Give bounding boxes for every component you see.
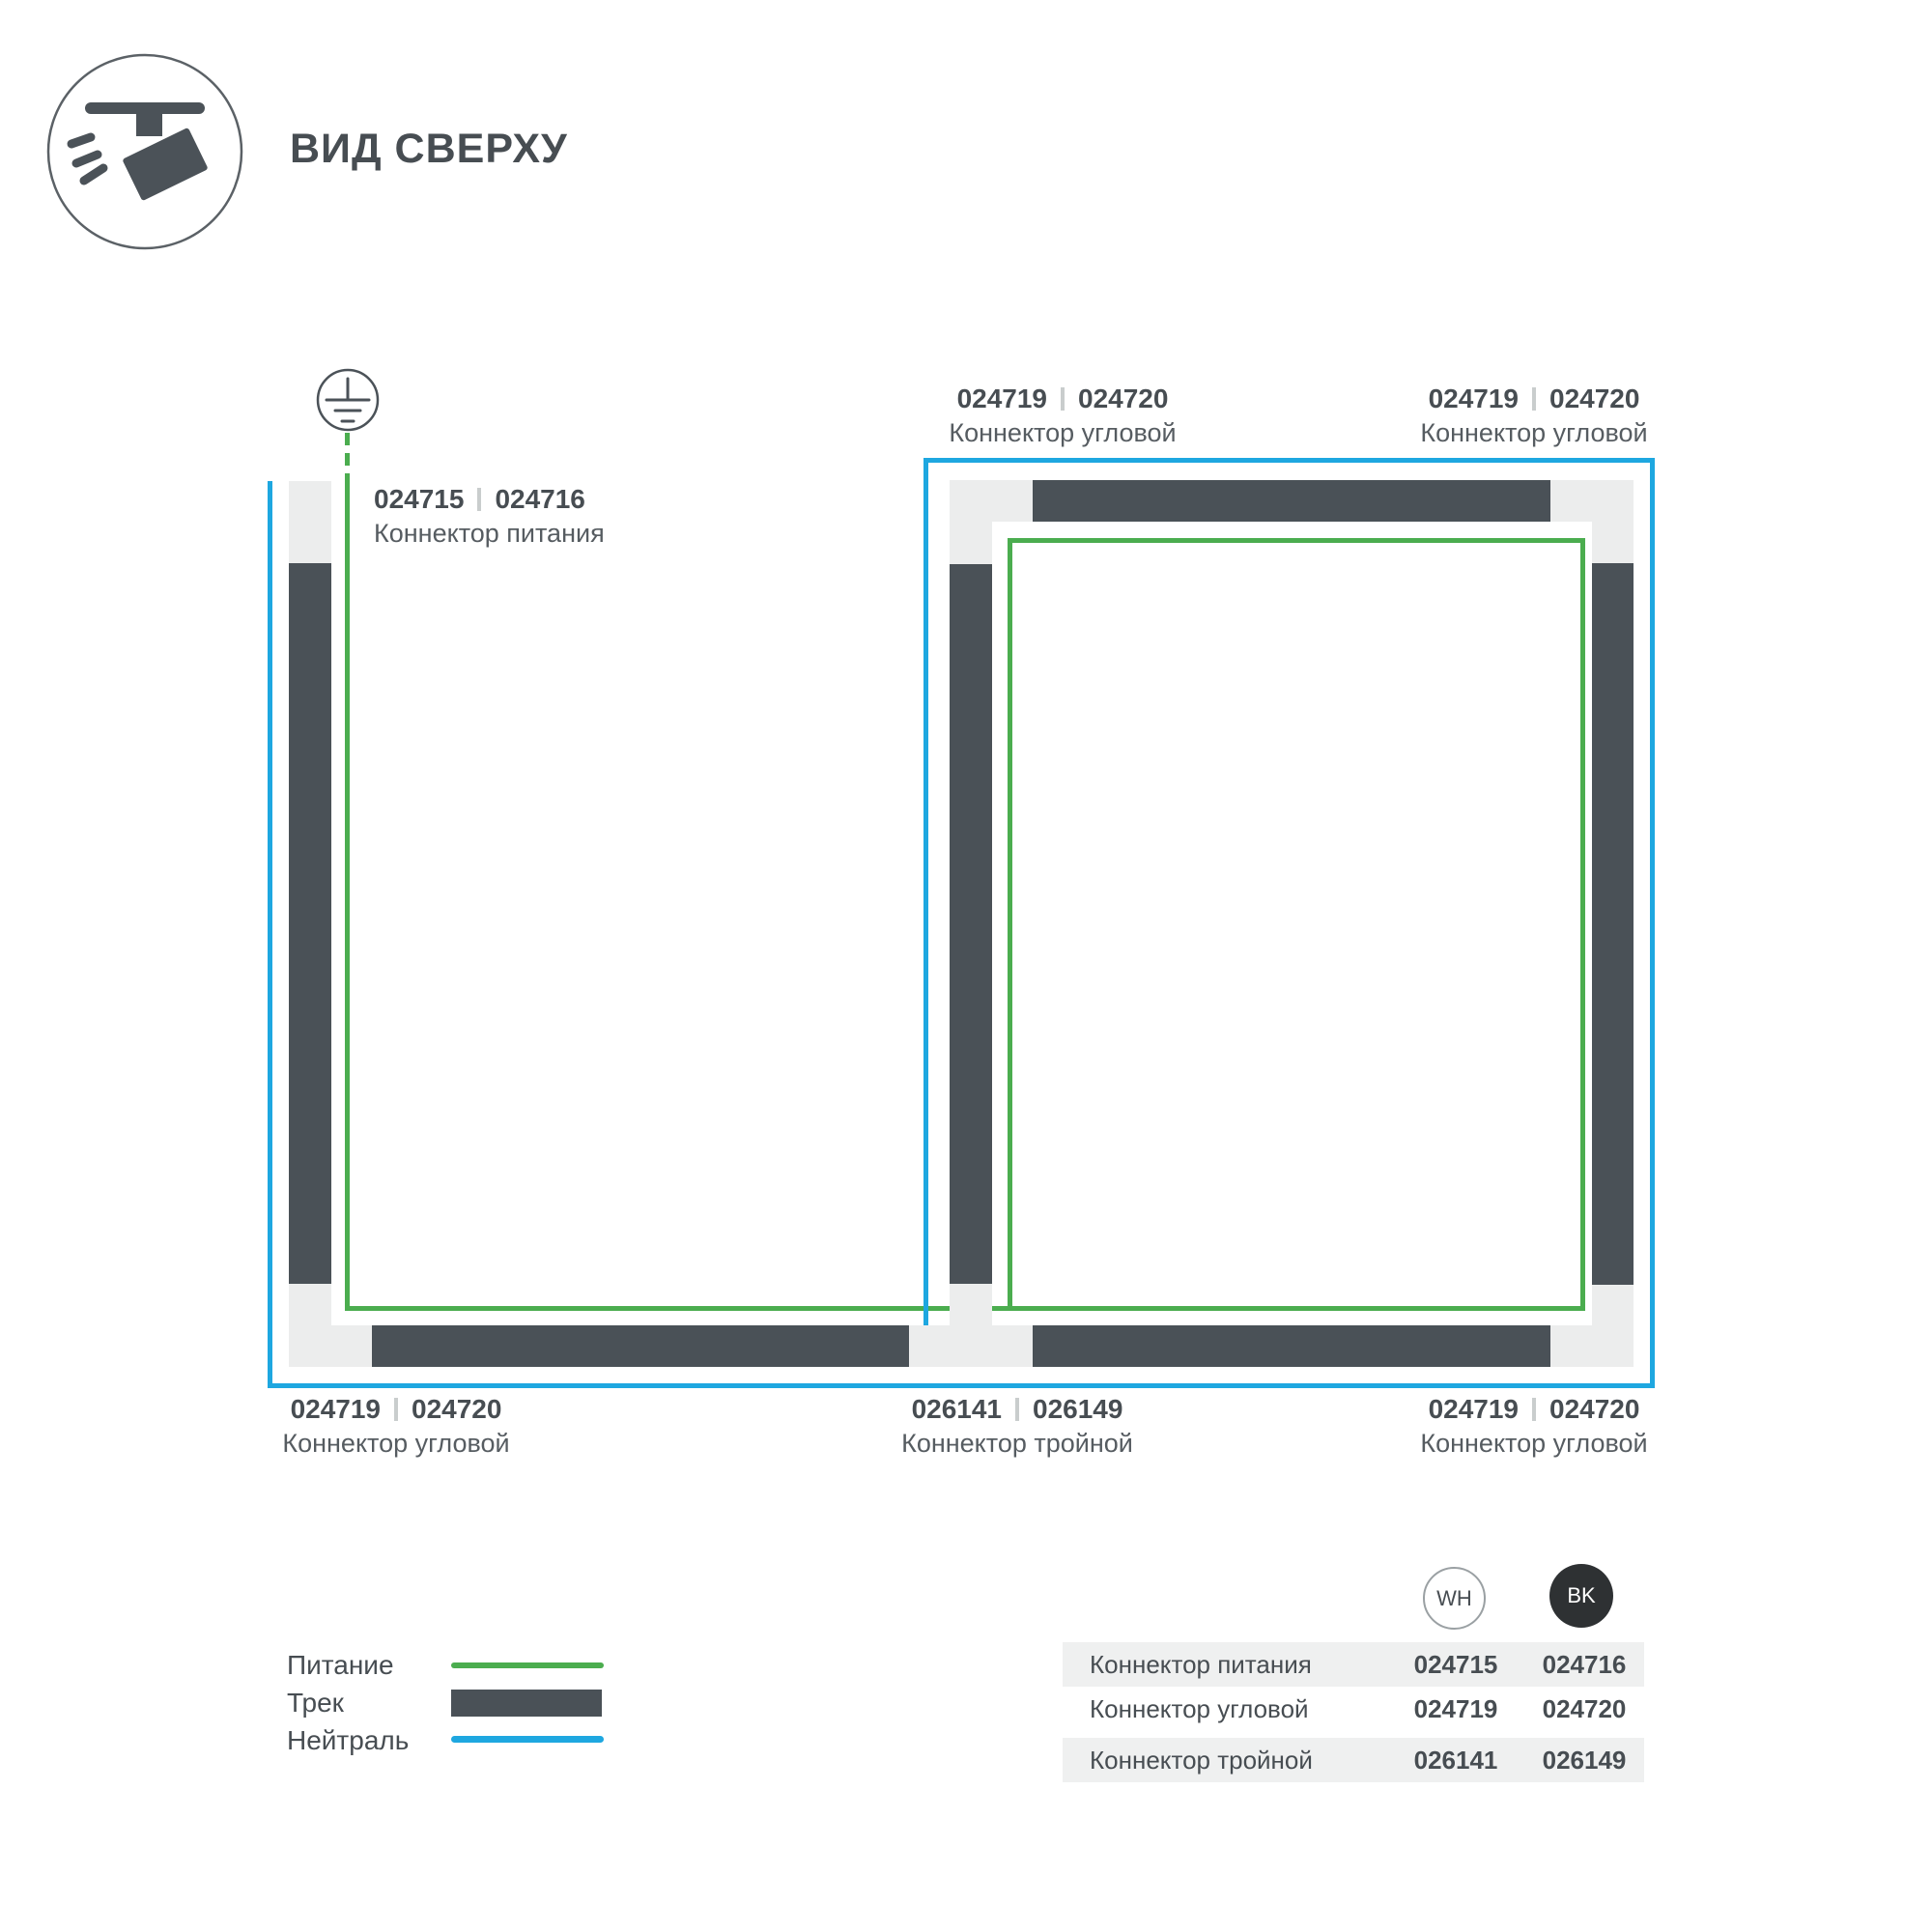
table-row: Коннектор угловой 024719 024720 [1063,1687,1644,1731]
power-loop-right [1580,538,1585,1311]
code-wh: 024719 [1429,384,1519,413]
track-loop-right [1592,563,1634,1285]
code-separator [1532,1398,1536,1421]
label-corner-top-right: 024719 024720 Коннектор угловой [1341,384,1727,447]
label-name: Коннектор угловой [1341,418,1727,447]
legend-label-track: Трек [287,1689,344,1718]
table-row-wh-code: 024719 [1412,1687,1499,1731]
label-name: Коннектор угловой [203,1429,589,1458]
code-bk: 024716 [495,485,584,514]
track-left-vertical [289,563,331,1284]
code-wh: 024719 [1429,1395,1519,1424]
label-codes: 024719 024720 [1341,1395,1727,1424]
legend-swatch-track [451,1690,602,1717]
triple-connector-h [909,1325,1033,1367]
corner-connector-bottom-right-h [1550,1325,1634,1367]
label-power-connector: 024715 024716 Коннектор питания [374,485,780,548]
legend-label-power: Питание [287,1651,394,1680]
label-corner-top-left: 024719 024720 Коннектор угловой [869,384,1256,447]
power-loop-top [1008,538,1585,543]
table-row-name: Коннектор питания [1090,1642,1312,1687]
neutral-line-middle [923,458,928,1327]
neutral-line-bottom [268,1383,1655,1388]
badge-bk-label: BK [1567,1583,1595,1608]
code-wh: 026141 [912,1395,1002,1424]
label-triple-connector: 026141 026149 Коннектор тройной [824,1395,1210,1458]
code-bk: 024720 [1078,384,1168,413]
power-loop-left [1008,538,1012,1311]
label-name: Коннектор питания [374,519,780,548]
track-spotlight-icon [46,53,243,250]
page-title: ВИД СВЕРХУ [290,126,568,173]
code-wh: 024719 [957,384,1047,413]
table-row: Коннектор тройной 026141 026149 [1063,1738,1644,1782]
power-line-left [345,483,350,1311]
label-name: Коннектор тройной [824,1429,1210,1458]
code-wh: 024719 [291,1395,381,1424]
label-codes: 026141 026149 [824,1395,1210,1424]
track-loop-bottom [1033,1325,1550,1367]
table-row-bk-code: 024716 [1541,1642,1628,1687]
code-separator [1015,1398,1019,1421]
code-wh: 024715 [374,485,464,514]
table-row-name: Коннектор угловой [1090,1687,1309,1731]
code-separator [1061,387,1065,411]
neutral-line-left [268,481,272,1388]
table-row-bk-code: 024720 [1541,1687,1628,1731]
table-row-wh-code: 024715 [1412,1642,1499,1687]
table-row-name: Коннектор тройной [1090,1738,1313,1782]
corner-connector-top-left-v [950,480,992,564]
label-codes: 024719 024720 [1341,384,1727,413]
track-loop-top [1033,480,1550,522]
badge-wh-label: WH [1436,1586,1472,1611]
legend-swatch-neutral [451,1736,604,1743]
label-name: Коннектор угловой [1341,1429,1727,1458]
table-row-bk-code: 026149 [1541,1738,1628,1782]
label-codes: 024715 024716 [374,485,780,514]
legend-label-neutral: Нейтраль [287,1726,409,1755]
color-badge-bk: BK [1549,1564,1613,1628]
code-bk: 024720 [412,1395,501,1424]
track-left-bottom [372,1325,909,1367]
label-codes: 024719 024720 [203,1395,589,1424]
code-bk: 024720 [1549,1395,1639,1424]
neutral-line-right [1650,458,1655,1388]
color-badge-wh: WH [1423,1567,1486,1630]
corner-connector-bottom-left-h [289,1325,372,1367]
track-loop-left [950,564,992,1284]
code-bk: 026149 [1033,1395,1122,1424]
table-row-wh-code: 026141 [1412,1738,1499,1782]
label-corner-bottom-left: 024719 024720 Коннектор угловой [203,1395,589,1458]
label-codes: 024719 024720 [869,384,1256,413]
code-bk: 024720 [1549,384,1639,413]
code-separator [394,1398,398,1421]
power-connector-cap [289,481,331,563]
top-view-diagram: ВИД СВЕРХУ 024715 [0,0,1932,1932]
code-separator [1532,387,1536,411]
label-name: Коннектор угловой [869,418,1256,447]
neutral-line-top [923,458,1655,463]
table-row: Коннектор питания 024715 024716 [1063,1642,1644,1687]
label-corner-bottom-right: 024719 024720 Коннектор угловой [1341,1395,1727,1458]
corner-connector-top-right-v [1592,480,1634,563]
legend-swatch-power [451,1662,604,1668]
ground-icon [316,368,380,432]
code-separator [477,488,481,511]
power-line-dashed [345,433,350,485]
